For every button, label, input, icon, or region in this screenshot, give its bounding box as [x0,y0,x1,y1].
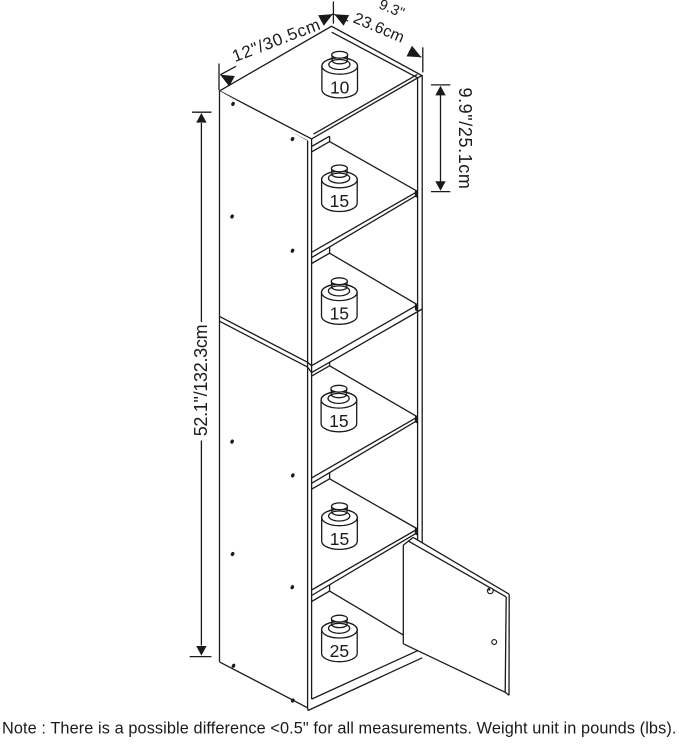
svg-text:15: 15 [330,304,349,324]
svg-text:15: 15 [329,411,348,431]
svg-text:10: 10 [330,77,350,97]
svg-text:15: 15 [330,191,349,211]
svg-text:15: 15 [330,529,349,549]
svg-text:9.9"/25.1cm: 9.9"/25.1cm [455,87,475,189]
svg-text:25: 25 [330,641,349,661]
svg-text:52.1"/132.3cm: 52.1"/132.3cm [191,325,211,437]
svg-text:Note : There is a possible dif: Note : There is a possible difference <0… [2,720,676,738]
